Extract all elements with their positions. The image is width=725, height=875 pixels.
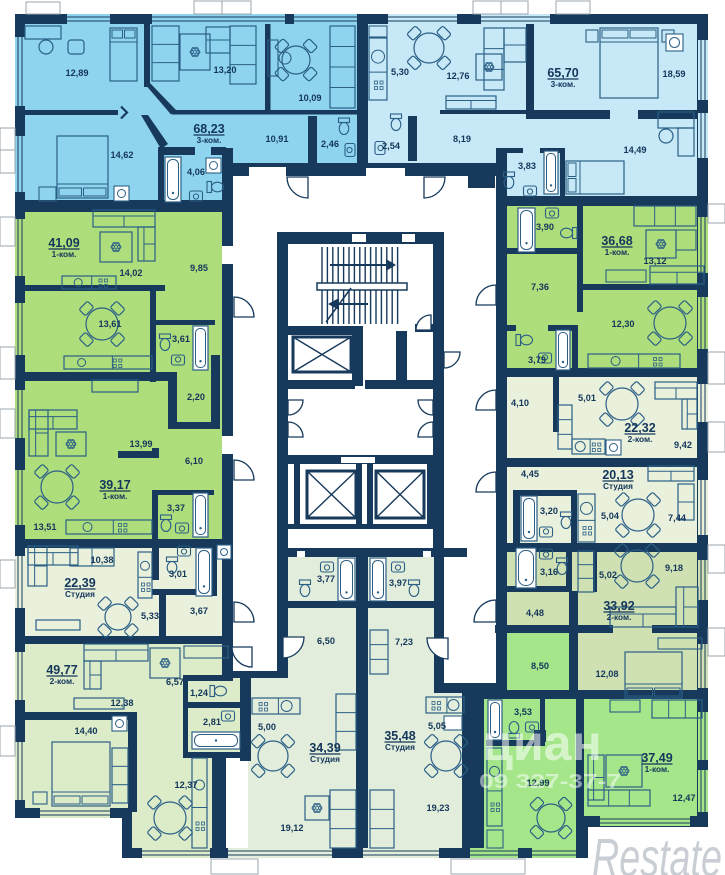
svg-text:4,10: 4,10	[511, 398, 529, 408]
svg-text:2,81: 2,81	[203, 717, 221, 727]
svg-text:12,89: 12,89	[66, 68, 89, 78]
svg-text:9,42: 9,42	[674, 440, 692, 450]
svg-text:13,20: 13,20	[214, 65, 237, 75]
svg-text:Студия: Студия	[385, 742, 415, 752]
svg-text:4,45: 4,45	[521, 469, 539, 479]
svg-text:1-ком.: 1-ком.	[605, 247, 630, 257]
svg-text:3,97: 3,97	[389, 578, 407, 588]
svg-text:14,02: 14,02	[120, 268, 143, 278]
svg-text:3,01: 3,01	[169, 569, 187, 579]
svg-text:6,57: 6,57	[166, 677, 184, 687]
svg-text:2,54: 2,54	[382, 141, 401, 151]
svg-text:3-ком.: 3-ком.	[551, 79, 576, 89]
svg-text:3,83: 3,83	[518, 161, 536, 171]
svg-text:13,51: 13,51	[34, 522, 57, 532]
svg-text:3,37: 3,37	[167, 503, 185, 513]
svg-text:2-ком.: 2-ком.	[628, 434, 653, 444]
svg-text:10,38: 10,38	[91, 555, 114, 565]
svg-text:3,20: 3,20	[540, 506, 558, 516]
svg-text:5,00: 5,00	[258, 722, 276, 732]
svg-text:8,50: 8,50	[531, 661, 549, 671]
svg-text:6,50: 6,50	[317, 636, 335, 646]
svg-text:6,10: 6,10	[185, 456, 203, 466]
svg-text:9,85: 9,85	[190, 263, 208, 273]
svg-text:14,62: 14,62	[111, 150, 134, 160]
svg-text:1-ком.: 1-ком.	[645, 764, 670, 774]
svg-text:12,08: 12,08	[596, 669, 619, 679]
svg-text:12,76: 12,76	[447, 71, 470, 81]
svg-text:Restate: Restate	[592, 828, 722, 875]
svg-text:3,79: 3,79	[528, 355, 546, 365]
svg-text:7,23: 7,23	[395, 637, 413, 647]
svg-text:3,77: 3,77	[317, 574, 335, 584]
svg-text:2,20: 2,20	[187, 392, 205, 402]
svg-text:2-ком.: 2-ком.	[607, 612, 632, 622]
svg-text:13,12: 13,12	[644, 256, 667, 266]
svg-text:1,24: 1,24	[190, 688, 209, 698]
svg-text:Студия: Студия	[65, 589, 95, 599]
svg-text:5,05: 5,05	[428, 721, 446, 731]
svg-text:Студия: Студия	[603, 481, 633, 491]
svg-text:10,09: 10,09	[299, 93, 322, 103]
svg-text:1-ком.: 1-ком.	[103, 491, 128, 501]
svg-text:14,49: 14,49	[624, 145, 647, 155]
svg-text:12,38: 12,38	[111, 698, 134, 708]
svg-text:18,59: 18,59	[663, 69, 686, 79]
svg-text:09 327-37-7: 09 327-37-7	[479, 771, 621, 793]
svg-text:7,36: 7,36	[531, 282, 549, 292]
svg-text:3-ком.: 3-ком.	[197, 135, 222, 145]
svg-text:3,61: 3,61	[172, 334, 190, 344]
svg-text:19,12: 19,12	[281, 823, 304, 833]
svg-text:12,30: 12,30	[612, 319, 635, 329]
svg-text:5,02: 5,02	[599, 570, 617, 580]
svg-text:8,19: 8,19	[453, 134, 471, 144]
svg-text:12,47: 12,47	[673, 793, 696, 803]
svg-text:13,61: 13,61	[99, 319, 122, 329]
svg-text:3,67: 3,67	[190, 606, 208, 616]
svg-text:4,06: 4,06	[187, 167, 205, 177]
svg-text:12,37: 12,37	[175, 780, 198, 790]
svg-text:5,30: 5,30	[391, 67, 409, 77]
svg-text:3,16: 3,16	[540, 567, 558, 577]
svg-text:9,18: 9,18	[665, 563, 683, 573]
svg-text:3,90: 3,90	[536, 222, 554, 232]
svg-text:Студия: Студия	[310, 754, 340, 764]
svg-text:13,99: 13,99	[130, 439, 153, 449]
svg-text:7,44: 7,44	[668, 513, 687, 523]
svg-text:14,40: 14,40	[75, 726, 98, 736]
svg-text:5,33: 5,33	[141, 611, 159, 621]
svg-text:5,01: 5,01	[578, 393, 596, 403]
svg-text:циан: циан	[482, 715, 601, 771]
svg-text:1-ком.: 1-ком.	[52, 249, 77, 259]
svg-text:19,23: 19,23	[427, 803, 450, 813]
svg-text:5,04: 5,04	[601, 511, 620, 521]
svg-text:2,46: 2,46	[321, 139, 339, 149]
svg-text:10,91: 10,91	[266, 134, 289, 144]
svg-text:4,48: 4,48	[526, 608, 544, 618]
svg-text:2-ком.: 2-ком.	[50, 676, 75, 686]
